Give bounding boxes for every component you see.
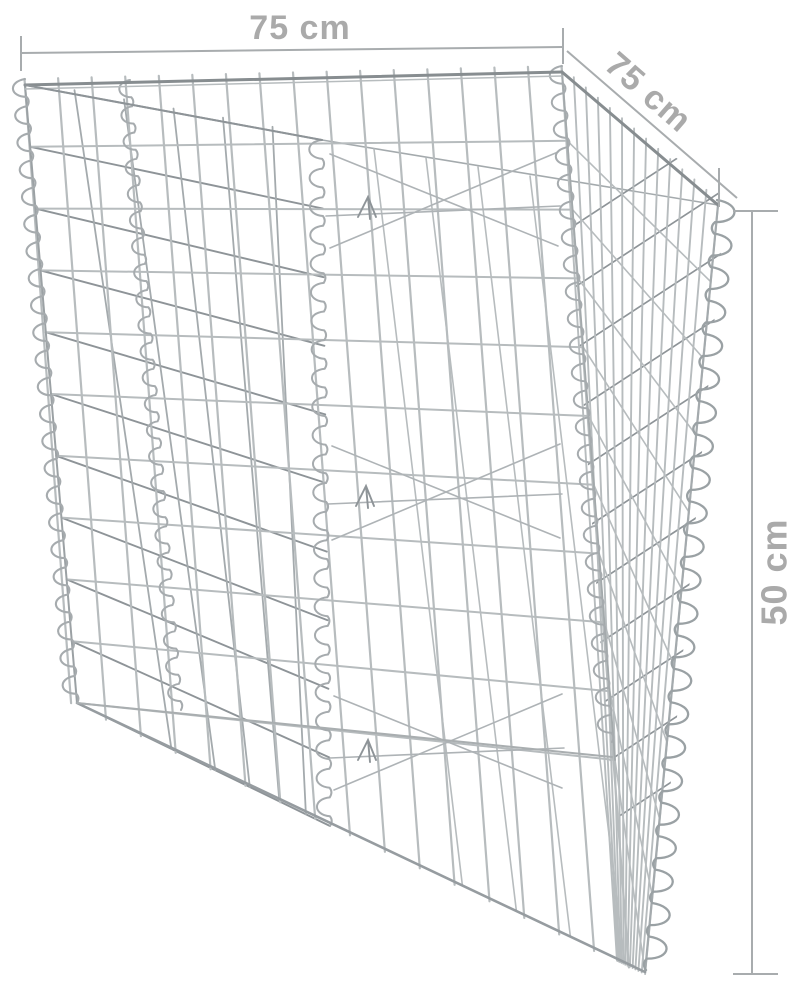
wire bbox=[67, 579, 605, 622]
wire bbox=[35, 209, 323, 278]
width-dimension: 75 cm bbox=[21, 9, 563, 71]
wire bbox=[330, 152, 558, 248]
spiral-binder-wire bbox=[309, 140, 331, 826]
spiral-binders-front bbox=[13, 66, 615, 826]
height-dimension: 50 cm bbox=[733, 211, 795, 974]
wire bbox=[567, 141, 710, 282]
tie-hook-wire bbox=[358, 740, 376, 762]
front-panel-wires bbox=[25, 66, 629, 967]
wire bbox=[573, 210, 704, 359]
depth-dimension-label: 75 cm bbox=[598, 45, 699, 140]
wire bbox=[622, 118, 623, 964]
wire bbox=[192, 75, 245, 786]
wire bbox=[226, 74, 280, 802]
wire bbox=[478, 167, 570, 937]
gabion-dimension-diagram: 75 cm 75 cm 50 cm bbox=[0, 0, 798, 993]
width-dimension-label: 75 cm bbox=[249, 9, 350, 47]
depth-dimension: 75 cm bbox=[567, 45, 737, 207]
wire bbox=[426, 158, 516, 911]
wire bbox=[645, 205, 718, 972]
cross-brace-wires bbox=[326, 152, 564, 790]
wire bbox=[259, 73, 315, 819]
wire bbox=[77, 703, 645, 972]
wire bbox=[461, 68, 525, 918]
wire bbox=[638, 180, 694, 971]
dimension-line bbox=[21, 47, 563, 53]
wire bbox=[30, 147, 323, 209]
wire bbox=[72, 641, 610, 691]
wire bbox=[528, 67, 594, 951]
height-dimension-label: 50 cm bbox=[754, 518, 795, 625]
tie-hook-wire bbox=[358, 197, 376, 219]
product-dimension-image: 75 cm 75 cm 50 cm bbox=[0, 0, 798, 993]
wire bbox=[25, 85, 322, 140]
wire bbox=[125, 77, 176, 753]
